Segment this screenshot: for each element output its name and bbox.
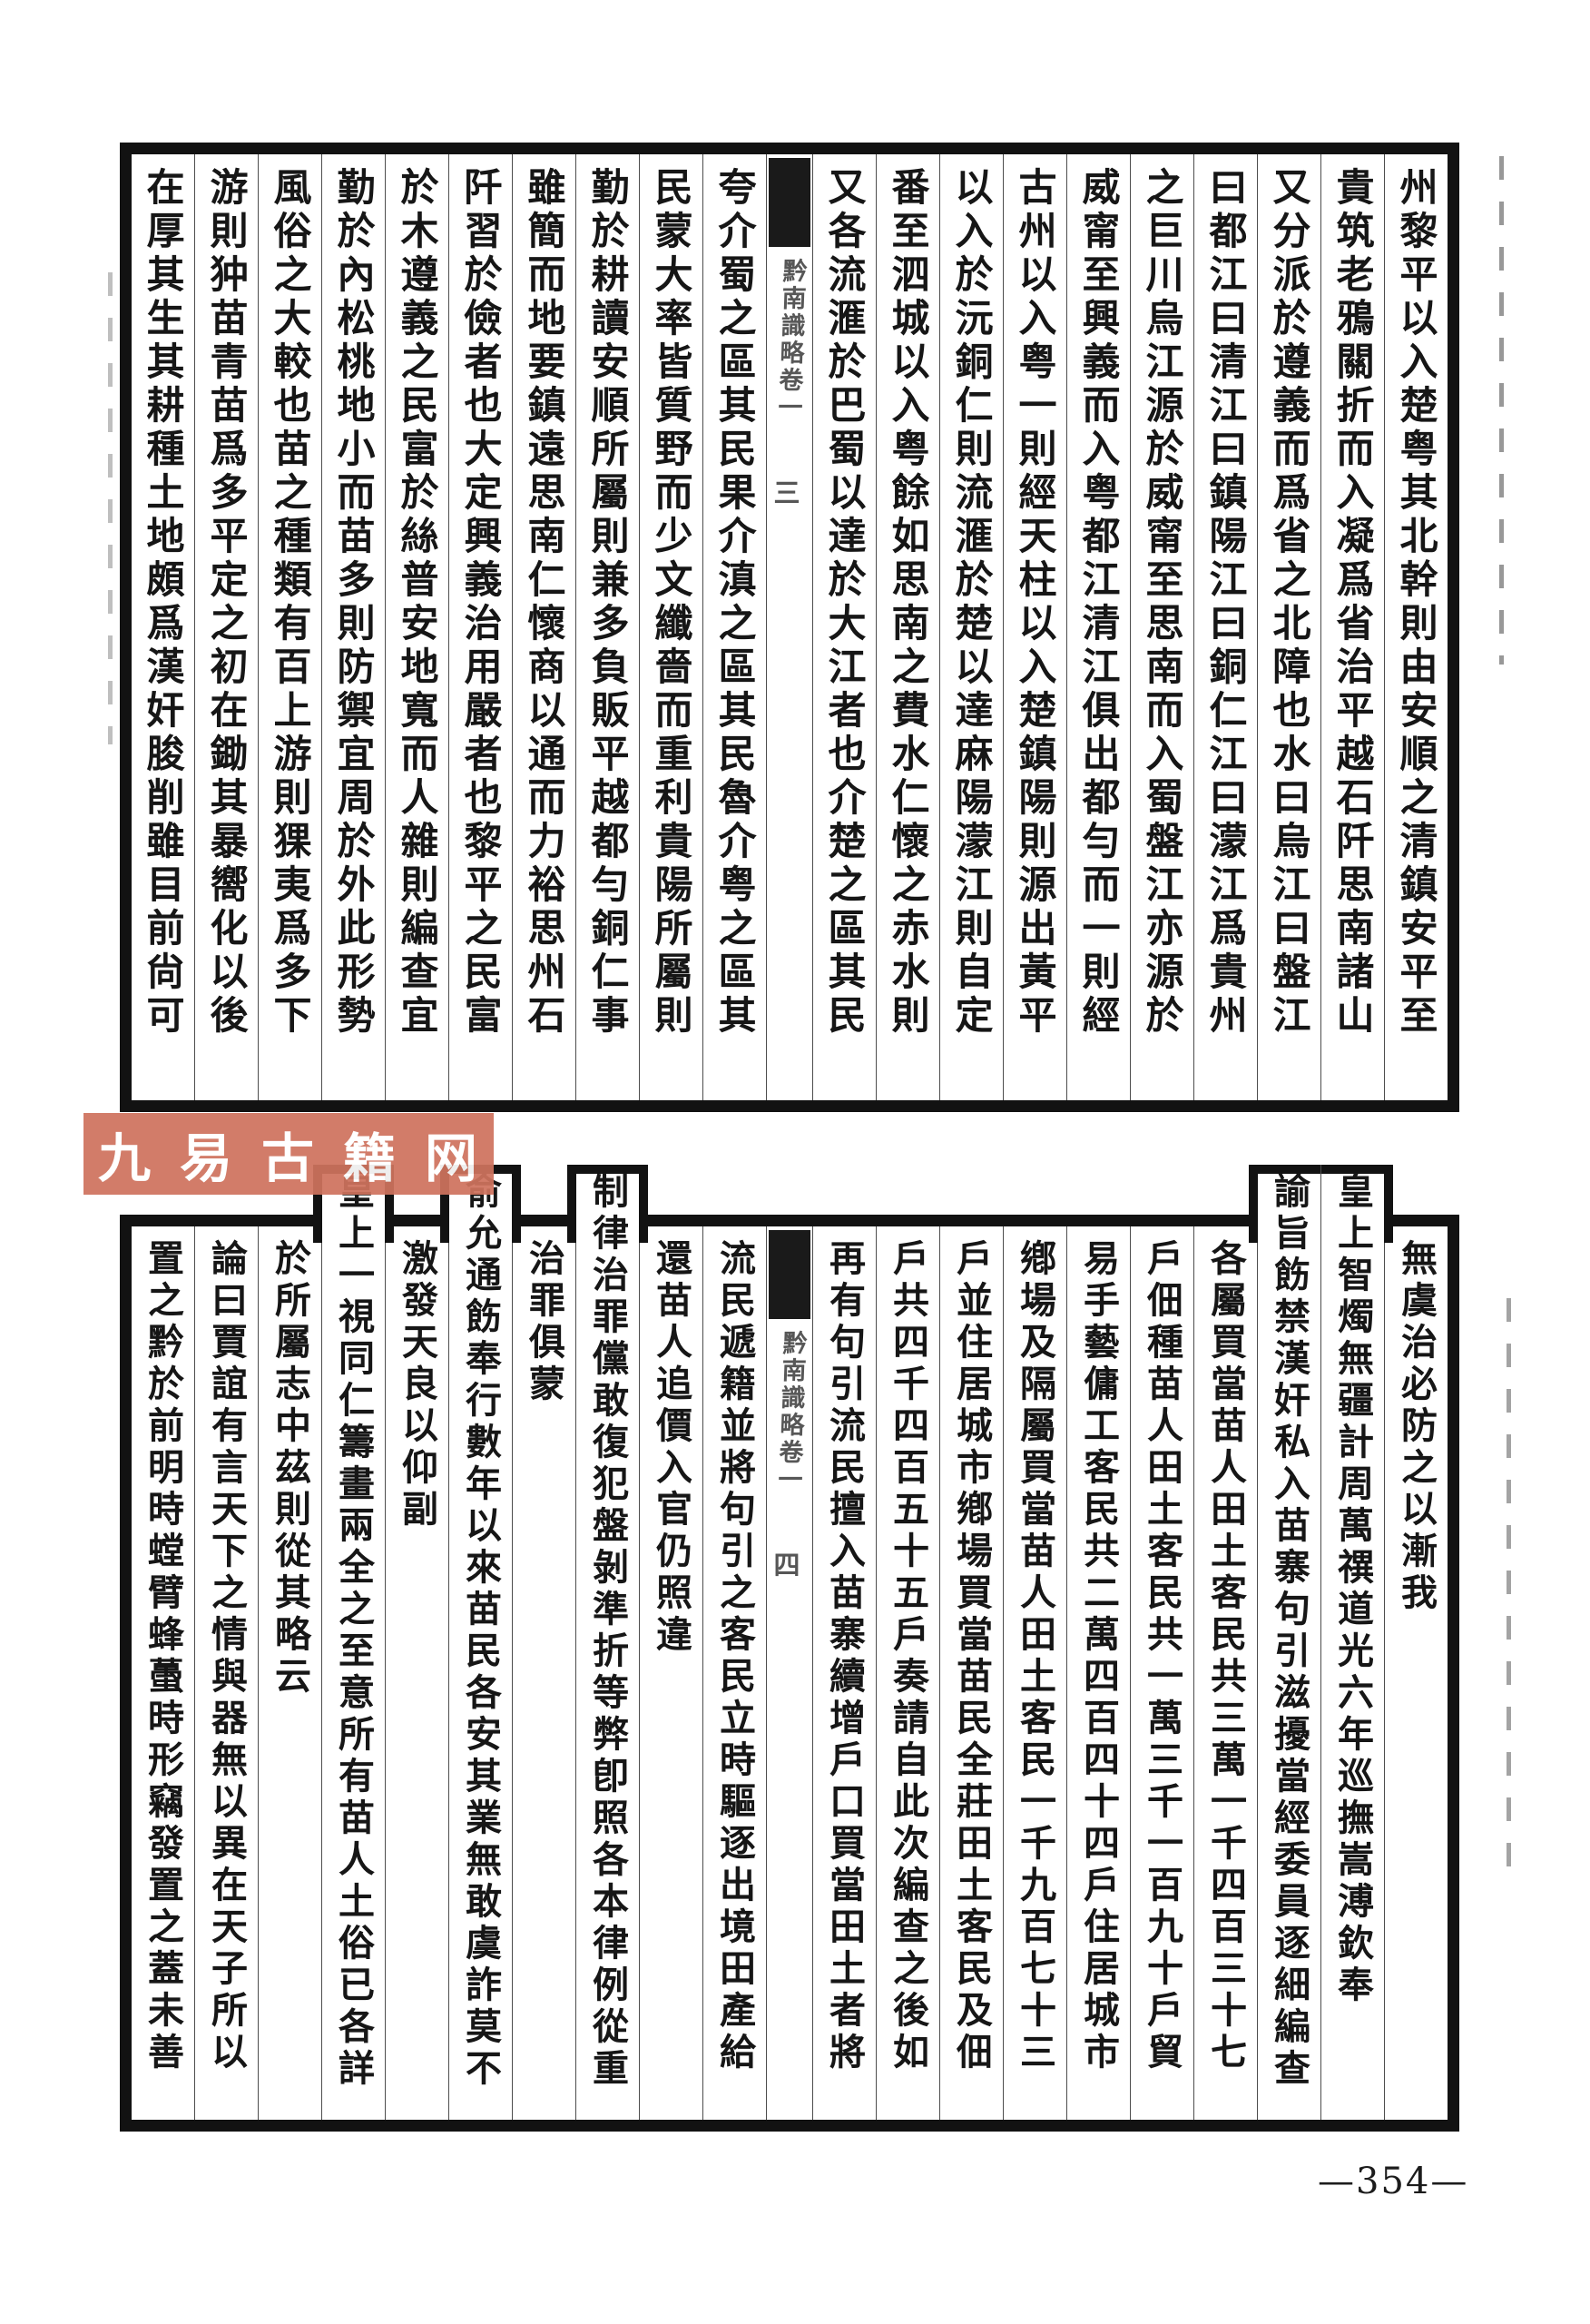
bottom-leaf-block: 無虞治必防之以漸我皇上智燭無疆計周萬禩道光六年巡撫嵩溥欽奉諭旨飭禁漢奸私入苗寨句… — [120, 1215, 1459, 2132]
column-text: 民蒙大率皆質野而少文纖嗇而重利貴陽所屬則 — [649, 167, 693, 1039]
centerfold-title: 黔南識略卷一 — [769, 258, 810, 421]
column-text: 論曰賈誼有言天下之情與器無以異在天子所以 — [205, 1239, 248, 2074]
column-text: 州黎平以入楚粤其北幹則由安順之清鎮安平至 — [1394, 167, 1438, 1039]
text-column: 阡習於儉者也大定興義治用嚴者也黎平之民富 — [448, 154, 512, 1100]
text-column: 戶佃種苗人田土客民共一萬三千一百九十戶貿 — [1130, 1226, 1193, 2120]
centerfold-page-number: 四 — [773, 1544, 805, 1582]
column-text: 又各流滙於巴蜀以達於大江者也介楚之區其民 — [822, 167, 867, 1039]
text-column: 各屬買當苗人田土客民共三萬一千四百三十七 — [1193, 1226, 1257, 2120]
centerfold-column: 黔南識略卷一四 — [766, 1226, 812, 2120]
column-text: 風俗之大較也苗之種類有百上游則猓夷爲多下 — [268, 167, 312, 1039]
text-column: 又各流滙於巴蜀以達於大江者也介楚之區其民 — [812, 154, 876, 1100]
text-column: 治罪俱蒙 — [512, 1226, 575, 2120]
text-column: 民蒙大率皆質野而少文纖嗇而重利貴陽所屬則 — [639, 154, 702, 1100]
text-column: 鄕場及隔屬買當苗人田土客民一千九百七十三 — [1003, 1226, 1066, 2120]
column-text: 皇上一視同仁籌畫兩全之至意所有苗人土俗已各詳 — [332, 1172, 375, 2091]
column-text: 於木遵義之民富於絲普安地寬而人雜則編查宜 — [395, 167, 439, 1039]
text-column: 貴筑老鴉關折而入凝爲省治平越石阡思南諸山 — [1320, 154, 1384, 1100]
page-number-footer: —354— — [1318, 2161, 1468, 2202]
text-column: 之巨川烏江源於威甯至思南而入蜀盤江亦源於 — [1130, 154, 1193, 1100]
raised-honorific-column: 諭旨飭禁漢奸私入苗寨句引滋擾當經委員逐細編查 — [1257, 1165, 1320, 2120]
column-text: 治罪俱蒙 — [523, 1239, 565, 1406]
column-text: 以入於沅銅仁則流滙於楚以達麻陽濛江則自定 — [949, 167, 994, 1039]
column-text: 無虞治必防之以漸我 — [1395, 1239, 1438, 1615]
column-text: 易手藝傭工客民共二萬四百四十四戶住居城市 — [1077, 1239, 1120, 2074]
column-text: 諭旨飭禁漢奸私入苗寨句引滋擾當經委員逐細編查 — [1268, 1172, 1310, 2091]
centerfold-page-number: 三 — [773, 472, 805, 510]
raised-honorific-column: 俞允通飭奉行數年以來苗民各安其業無敢虞詐莫不 — [448, 1165, 512, 2120]
text-column: 威甯至興義而入粤都江清江俱出都勻而一則經 — [1066, 154, 1130, 1100]
column-text: 威甯至興義而入粤都江清江俱出都勻而一則經 — [1076, 167, 1121, 1039]
column-text: 雖簡而地要鎮遠思南仁懷商以通而力裕思州石 — [522, 167, 566, 1039]
text-column: 番至泗城以入粤餘如思南之費水仁懷之赤水則 — [876, 154, 939, 1100]
text-column: 游則狆苗青苗爲多平定之初在鋤其暴嚮化以後 — [194, 154, 258, 1100]
column-text: 制律治罪儻敢復犯盤剝準折等弊卽照各本律例從重 — [586, 1172, 629, 2091]
column-text: 俞允通飭奉行數年以來苗民各安其業無敢虞詐莫不 — [459, 1172, 502, 2091]
text-column: 州黎平以入楚粤其北幹則由安順之清鎮安平至 — [1384, 154, 1448, 1100]
text-column: 戶並住居城市鄕場買當苗民全莊田土客民及佃 — [939, 1226, 1003, 2120]
column-text: 勤於耕讀安順所屬則兼多負販平越都勻銅仁事 — [585, 167, 630, 1039]
fishtail-bar — [769, 1230, 810, 1319]
text-column: 易手藝傭工客民共二萬四百四十四戶住居城市 — [1066, 1226, 1130, 2120]
column-text: 在厚其生其耕種土地頗爲漢奸朘削雖目前尙可 — [141, 167, 185, 1039]
top-leaf-block: 州黎平以入楚粤其北幹則由安順之清鎮安平至貴筑老鴉關折而入凝爲省治平越石阡思南諸山… — [120, 143, 1459, 1112]
text-column: 論曰賈誼有言天下之情與器無以異在天子所以 — [194, 1226, 258, 2120]
column-text: 阡習於儉者也大定興義治用嚴者也黎平之民富 — [458, 167, 503, 1039]
outer-frame-streak — [1507, 1298, 1511, 1888]
text-column: 古州以入粤一則經天柱以入楚鎮陽則源出黃平 — [1003, 154, 1066, 1100]
text-column: 置之黔於前明時螳臂蜂蠆時形竊發置之蓋未善 — [132, 1226, 194, 2120]
column-text: 之巨川烏江源於威甯至思南而入蜀盤江亦源於 — [1140, 167, 1184, 1039]
text-column: 曰都江曰清江曰鎮陽江曰銅仁江曰濛江爲貴州 — [1193, 154, 1257, 1100]
column-text: 激發天良以仰副 — [396, 1239, 438, 1531]
text-column: 在厚其生其耕種土地頗爲漢奸朘削雖目前尙可 — [132, 154, 194, 1100]
scanned-book-page: 州黎平以入楚粤其北幹則由安順之清鎮安平至貴筑老鴉關折而入凝爲省治平越石阡思南諸山… — [0, 0, 1590, 2324]
text-column: 風俗之大較也苗之種類有百上游則猓夷爲多下 — [258, 154, 321, 1100]
watermark-overlay: 九易古籍网 — [83, 1113, 494, 1195]
raised-honorific-column: 皇上一視同仁籌畫兩全之至意所有苗人土俗已各詳 — [321, 1165, 385, 2120]
column-text: 夸介蜀之區其民果介滇之區其民魯介粤之區其 — [712, 167, 757, 1039]
raised-honorific-column: 皇上智燭無疆計周萬禩道光六年巡撫嵩溥欽奉 — [1320, 1165, 1384, 2120]
centerfold-column: 黔南識略卷一三 — [766, 154, 812, 1100]
column-text: 又分派於遵義而爲省之北障也水曰烏江曰盤江 — [1267, 167, 1311, 1039]
text-column: 雖簡而地要鎮遠思南仁懷商以通而力裕思州石 — [512, 154, 575, 1100]
outer-frame-streak — [1499, 156, 1504, 665]
text-column: 於所屬志中茲則從其略云 — [258, 1226, 321, 2120]
text-column: 於木遵義之民富於絲普安地寬而人雜則編查宜 — [385, 154, 448, 1100]
outer-frame-streak — [108, 272, 113, 744]
watermark-text: 九易古籍网 — [98, 1116, 494, 1192]
raised-honorific-column: 制律治罪儻敢復犯盤剝準折等弊卽照各本律例從重 — [575, 1165, 639, 2120]
column-text: 鄕場及隔屬買當苗人田土客民一千九百七十三 — [1014, 1239, 1056, 2074]
text-column: 無虞治必防之以漸我 — [1384, 1226, 1448, 2120]
text-column: 勤於內松桃地小而苗多則防禦宜周於外此形勢 — [321, 154, 385, 1100]
column-text: 於所屬志中茲則從其略云 — [269, 1239, 311, 1699]
centerfold-title: 黔南識略卷一 — [769, 1330, 810, 1493]
column-text: 再有句引流民擅入苗寨續增戶口買當田土者將 — [823, 1239, 866, 2074]
column-text: 皇上智燭無疆計周萬禩道光六年巡撫嵩溥欽奉 — [1331, 1172, 1374, 2007]
fishtail-bar — [769, 158, 810, 247]
column-text: 置之黔於前明時螳臂蜂蠆時形竊發置之蓋未善 — [142, 1239, 184, 2074]
text-column: 流民遞籍並將句引之客民立時驅逐出境田產給 — [702, 1226, 766, 2120]
text-column: 勤於耕讀安順所屬則兼多負販平越都勻銅仁事 — [575, 154, 639, 1100]
column-text: 戶並住居城市鄕場買當苗民全莊田土客民及佃 — [950, 1239, 993, 2074]
column-text: 流民遞籍並將句引之客民立時驅逐出境田產給 — [713, 1239, 756, 2074]
text-column: 激發天良以仰副 — [385, 1226, 448, 2120]
column-text: 番至泗城以入粤餘如思南之費水仁懷之赤水則 — [886, 167, 930, 1039]
column-text: 勤於內松桃地小而苗多則防禦宜周於外此形勢 — [331, 167, 376, 1039]
text-column: 夸介蜀之區其民果介滇之區其民魯介粤之區其 — [702, 154, 766, 1100]
text-column: 再有句引流民擅入苗寨續增戶口買當田土者將 — [812, 1226, 876, 2120]
column-text: 古州以入粤一則經天柱以入楚鎮陽則源出黃平 — [1013, 167, 1057, 1039]
text-column: 以入於沅銅仁則流滙於楚以達麻陽濛江則自定 — [939, 154, 1003, 1100]
column-text: 曰都江曰清江曰鎮陽江曰銅仁江曰濛江爲貴州 — [1203, 167, 1248, 1039]
column-text: 貴筑老鴉關折而入凝爲省治平越石阡思南諸山 — [1330, 167, 1375, 1039]
column-text: 戶佃種苗人田土客民共一萬三千一百九十戶貿 — [1141, 1239, 1183, 2074]
text-column: 又分派於遵義而爲省之北障也水曰烏江曰盤江 — [1257, 154, 1320, 1100]
column-text: 各屬買當苗人田土客民共三萬一千四百三十七 — [1204, 1239, 1247, 2074]
text-column: 還苗人追價入官仍照違 — [639, 1226, 702, 2120]
column-text: 游則狆苗青苗爲多平定之初在鋤其暴嚮化以後 — [204, 167, 249, 1039]
column-text: 還苗人追價入官仍照違 — [650, 1239, 692, 1657]
column-text: 戶共四千四百五十五戶奏請自此次編查之後如 — [887, 1239, 929, 2074]
text-column: 戶共四千四百五十五戶奏請自此次編查之後如 — [876, 1226, 939, 2120]
